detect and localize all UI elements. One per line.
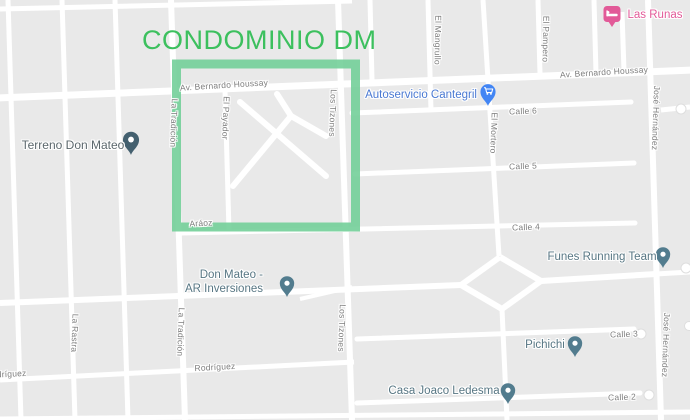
- map-canvas[interactable]: Av. Bernardo Houssay Av. Bernardo Houssa…: [0, 0, 690, 420]
- pichichi-pin[interactable]: [568, 336, 582, 357]
- street-label-el-mangrullo: El Mangrullo: [433, 15, 444, 65]
- casa-joaco-ledesma-pin[interactable]: [501, 383, 515, 404]
- road-calle-3: [357, 329, 634, 339]
- map-graphics: [0, 0, 690, 420]
- condominio-internal-roads: [233, 94, 326, 186]
- road-jose-hernandez: [648, 0, 661, 420]
- condominio-title: CONDOMINIO DM: [142, 25, 376, 56]
- road-la-rastra: [62, 0, 75, 420]
- street-label-calle-5: Calle 5: [509, 161, 537, 172]
- street-label-la-rastra: La Rastra: [69, 314, 80, 353]
- terreno-don-mateo-pin[interactable]: [123, 132, 139, 155]
- poi-label-casa-joaco-ledesma[interactable]: Casa Joaco Ledesma: [388, 385, 499, 397]
- poi-label-pichichi[interactable]: Pichichi: [525, 339, 565, 351]
- street-label-calle-6: Calle 6: [509, 106, 537, 117]
- poi-label-don-mateo-ar-inversiones[interactable]: Don Mateo - AR Inversiones: [185, 268, 263, 296]
- las-runas-pin bed-lodging-icon[interactable]: [604, 6, 621, 27]
- poi-label-line1: Don Mateo -: [185, 268, 263, 282]
- street-label-calle-4: Calle 4: [512, 222, 540, 233]
- road-rodriguez: [0, 362, 354, 380]
- road-el-pampero: [538, 0, 540, 74]
- poi-label-funes-running-team[interactable]: Funes Running Team: [547, 251, 656, 263]
- street-label-la-tradicion: La Tradición: [168, 98, 180, 147]
- street-label-los-tizones-2: Los Tizones: [336, 304, 348, 352]
- street-label-el-mortero: El Mortero: [488, 112, 499, 154]
- poi-label-las-runas[interactable]: Las Runas: [628, 9, 683, 21]
- autoservicio-cantegril-pin shopping-cart-icon[interactable]: [480, 84, 495, 106]
- street-label-calle-3: Calle 3: [610, 329, 638, 340]
- street-label-araoz: Aráoz: [189, 217, 213, 228]
- poi-label-terreno-don-mateo[interactable]: Terreno Don Mateo: [22, 138, 125, 152]
- street-label-los-tizones: Los Tizones: [327, 89, 339, 137]
- road-el-mortero-lower: [502, 309, 507, 420]
- street-label-calle-2: Calle 2: [608, 392, 636, 403]
- poi-label-autoservicio-cantegril[interactable]: Autoservicio Cantegril: [365, 89, 477, 101]
- street-label-el-payador: El Payador: [220, 96, 232, 140]
- street-label-la-tradicion-2: La Tradición: [175, 307, 187, 356]
- poi-label-line2: AR Inversiones: [185, 282, 263, 296]
- street-label-el-pampero: El Pampero: [541, 16, 552, 63]
- street-label-rodriguez: Rodríguez: [194, 361, 235, 373]
